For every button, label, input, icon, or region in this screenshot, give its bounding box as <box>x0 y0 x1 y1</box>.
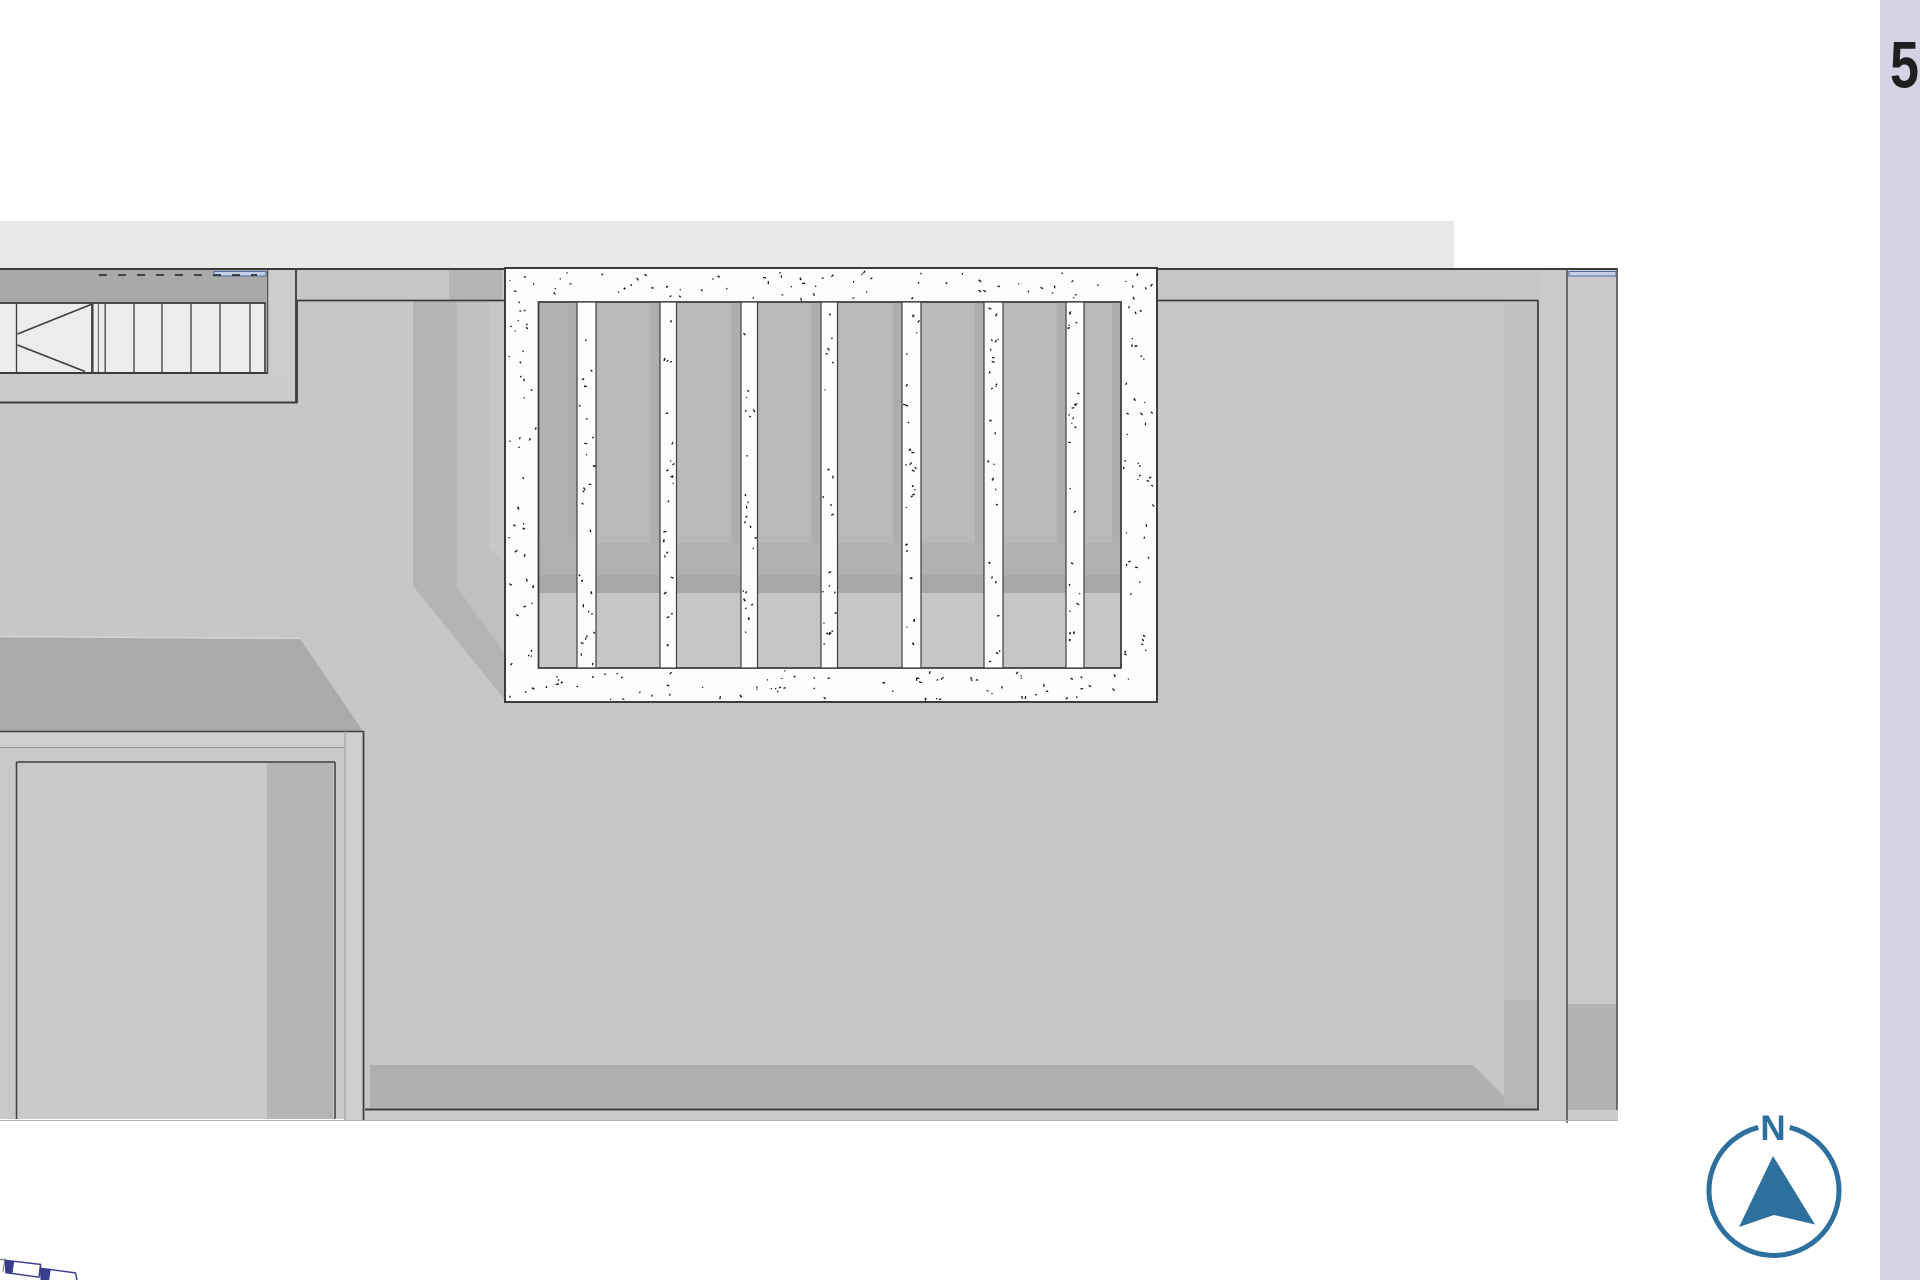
svg-text:5: 5 <box>1890 28 1919 102</box>
svg-text:N: N <box>1760 1109 1785 1148</box>
